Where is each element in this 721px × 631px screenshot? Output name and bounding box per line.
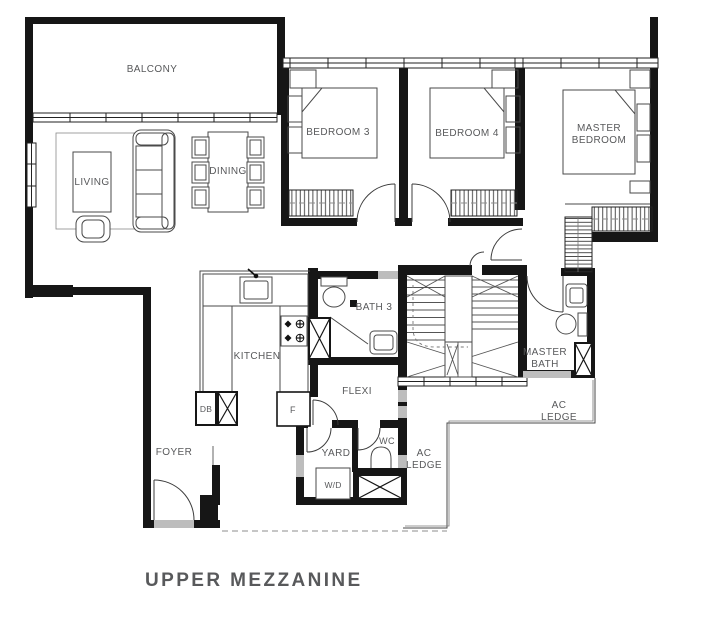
bath3-label: BATH 3	[356, 302, 393, 313]
flexi-label: FLEXI	[342, 386, 372, 397]
yard-label: YARD	[322, 448, 351, 459]
bed-bedroom4	[430, 70, 520, 158]
stairs	[407, 276, 518, 377]
door-stairhall	[470, 252, 484, 266]
bedroom3-label: BEDROOM 3	[306, 127, 370, 138]
floor-plan: BALCONY LIVING DINING BEDROOM 3 BEDROOM …	[0, 0, 721, 631]
wardrobe-bedroom4	[451, 190, 517, 216]
wardrobe-bedroom3	[289, 190, 353, 216]
kitchen-label: KITCHEN	[234, 351, 281, 362]
master-bedroom-label-1: MASTER	[577, 123, 621, 134]
door-wc	[358, 428, 380, 450]
toilet-master-bath	[556, 313, 587, 336]
stove	[281, 316, 307, 346]
sofa	[133, 130, 175, 232]
armchair	[76, 216, 110, 242]
shaft-master-bath	[575, 343, 592, 376]
master-bath-label-1: MASTER	[523, 347, 567, 358]
shaft-bath3	[309, 318, 330, 359]
shaft-box	[218, 392, 237, 425]
toilet-bath3	[321, 277, 347, 307]
floor-plan-drawing: BALCONY LIVING DINING BEDROOM 3 BEDROOM …	[0, 0, 721, 631]
master-bedroom-label-2: BEDROOM	[572, 135, 626, 146]
bed-bedroom3	[288, 70, 377, 158]
door-entrance	[154, 480, 194, 520]
washer-dryer-label: W/D	[324, 480, 341, 490]
master-bath-label-2: BATH	[531, 359, 559, 370]
ac-ledge-right-label-1: AC	[552, 400, 567, 411]
door-master-bath	[527, 276, 563, 312]
ac-ledge-right-label-2: LEDGE	[541, 412, 577, 423]
fridge-label: F	[290, 405, 296, 415]
bath3-fittings	[309, 277, 397, 359]
db-label: DB	[200, 404, 212, 414]
ac-ledge-lower-label-2: LEDGE	[406, 460, 442, 471]
foyer-label: FOYER	[156, 447, 192, 458]
plan-title: UPPER MEZZANINE	[145, 570, 363, 591]
shaft-wc	[353, 468, 407, 505]
door-bedroom3	[357, 184, 395, 222]
door-bedroom4	[412, 184, 450, 222]
wc-label: WC	[379, 436, 395, 446]
ac-ledge-lower-label-1: AC	[417, 448, 432, 459]
master-bath-fittings	[556, 284, 592, 376]
door-hallway	[491, 229, 522, 260]
basin-bath3	[370, 331, 397, 354]
dining-label: DINING	[209, 166, 246, 177]
kitchen-fittings	[196, 269, 310, 426]
balcony-label: BALCONY	[127, 64, 178, 75]
living-label: LIVING	[74, 177, 109, 188]
bedroom4-label: BEDROOM 4	[435, 128, 499, 139]
wardrobes	[289, 190, 652, 272]
basin-master-bath	[566, 284, 587, 307]
